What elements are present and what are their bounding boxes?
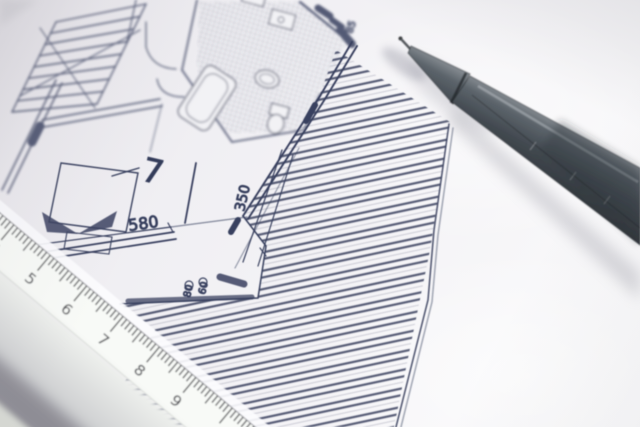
staircase	[12, 4, 146, 112]
scene-artwork: 85	[0, 0, 640, 427]
pen-blur-far	[540, 120, 640, 245]
dimension-85-label: 85	[344, 19, 358, 35]
photo-floorplan-scene: 85	[0, 0, 640, 427]
sheet-corner-shadow	[0, 0, 38, 26]
hall-doors	[127, 0, 184, 97]
room-7-label: 7	[138, 150, 167, 193]
dimension-580-label: 580	[127, 212, 160, 235]
dimension-60-label: 60	[197, 281, 211, 296]
